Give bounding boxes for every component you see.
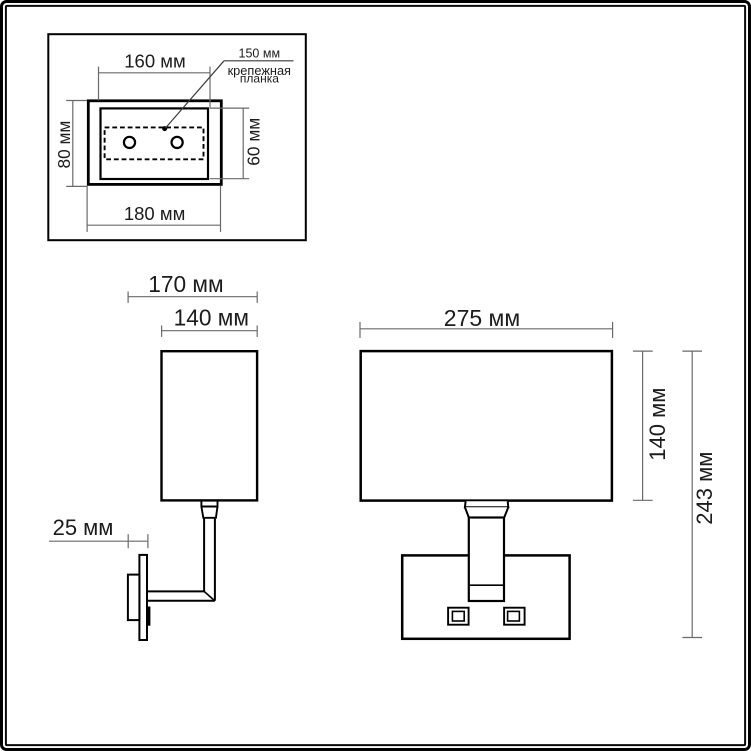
svg-text:150 мм: 150 мм <box>239 46 281 60</box>
svg-text:60 мм: 60 мм <box>244 118 264 166</box>
svg-text:140 мм: 140 мм <box>645 388 670 461</box>
svg-text:80 мм: 80 мм <box>54 121 74 169</box>
svg-text:25 мм: 25 мм <box>53 515 114 540</box>
svg-text:243 мм: 243 мм <box>692 452 717 525</box>
svg-text:180 мм: 180 мм <box>124 203 185 224</box>
svg-text:140 мм: 140 мм <box>174 304 249 330</box>
svg-text:планка: планка <box>240 72 279 86</box>
svg-text:275 мм: 275 мм <box>444 305 520 331</box>
svg-text:170 мм: 170 мм <box>148 271 223 297</box>
svg-text:160 мм: 160 мм <box>124 50 185 71</box>
